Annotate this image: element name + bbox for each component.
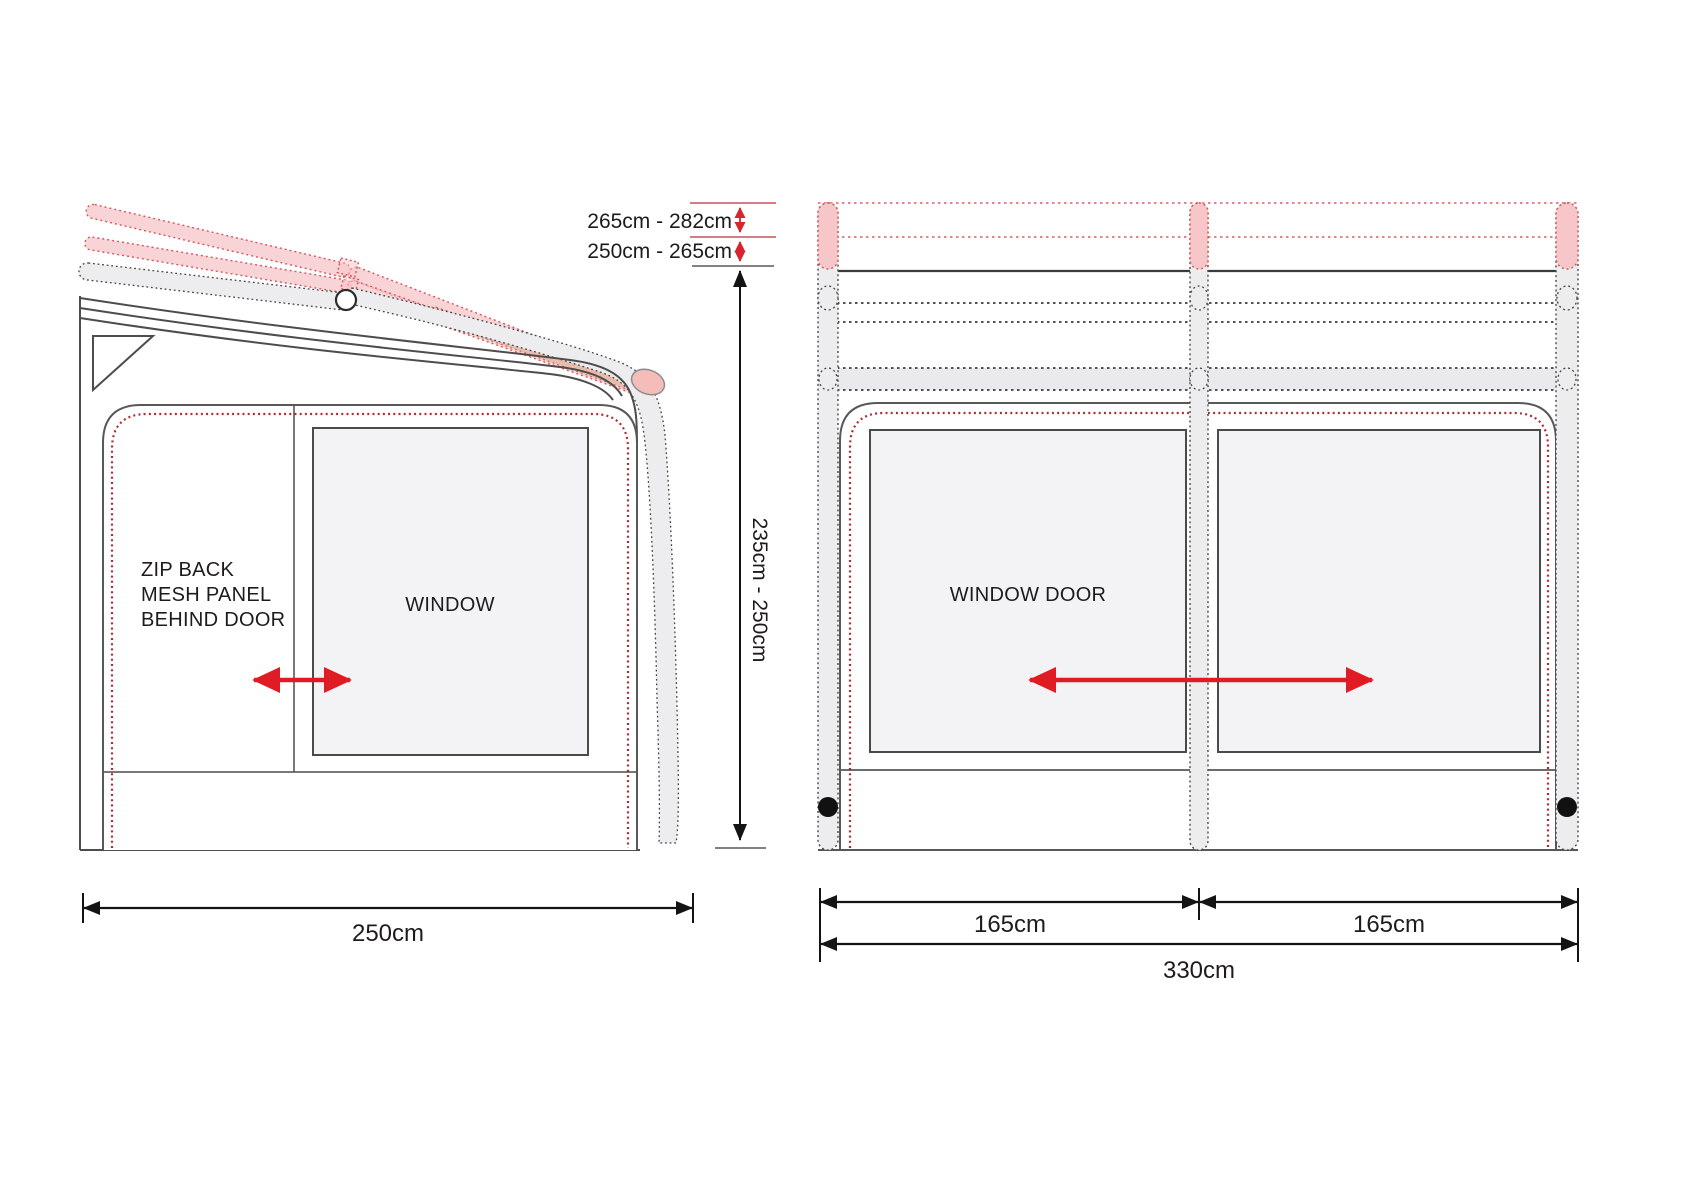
height-range-mid-label: 250cm - 265cm <box>587 240 732 263</box>
mesh-label-line1: ZIP BACK <box>141 559 235 581</box>
side-front-panel: ZIP BACK MESH PANEL BEHIND DOOR WINDOW <box>103 405 637 850</box>
middle-pole-joint <box>1190 286 1208 310</box>
left-peg-point <box>818 797 838 817</box>
total-width-label: 330cm <box>1163 957 1235 984</box>
mesh-label-line2: MESH PANEL <box>141 584 271 606</box>
pole-pivot-joint <box>336 290 356 310</box>
side-window <box>313 428 588 755</box>
side-width-label: 250cm <box>352 920 424 947</box>
left-pole-beam-joint <box>819 368 837 390</box>
roof-line-3 <box>80 318 613 400</box>
diagram-svg: ZIP BACK MESH PANEL BEHIND DOOR WINDOW 2… <box>0 0 1697 1200</box>
left-pole-joint <box>818 286 838 310</box>
awning-wedge-marker <box>93 336 153 390</box>
window-label: WINDOW <box>405 594 495 616</box>
left-pole-extension <box>818 203 838 269</box>
front-window-right <box>1218 430 1540 752</box>
middle-pole-beam-joint <box>1190 368 1208 390</box>
middle-pole-extension <box>1190 203 1208 269</box>
right-pole-beam-joint <box>1558 368 1576 390</box>
awning-dimension-diagram: ZIP BACK MESH PANEL BEHIND DOOR WINDOW 2… <box>0 0 1697 1200</box>
right-pole-joint <box>1557 286 1577 310</box>
side-width-dimension: 250cm <box>83 893 693 947</box>
side-view: ZIP BACK MESH PANEL BEHIND DOOR WINDOW 2… <box>78 203 776 947</box>
right-peg-point <box>1557 797 1577 817</box>
window-door-label: WINDOW DOOR <box>950 584 1107 606</box>
height-range-upper-label: 265cm - 282cm <box>587 210 732 233</box>
height-range-body-label: 235cm - 250cm <box>748 518 771 663</box>
left-panel-width-label: 165cm <box>974 911 1046 938</box>
right-panel-width-label: 165cm <box>1353 911 1425 938</box>
front-width-dimensions: 165cm 165cm 330cm <box>820 888 1578 984</box>
front-view: WINDOW DOOR 165cm 165cm 330cm <box>818 203 1578 984</box>
mesh-label-line3: BEHIND DOOR <box>141 609 285 631</box>
right-pole-extension <box>1556 203 1578 269</box>
